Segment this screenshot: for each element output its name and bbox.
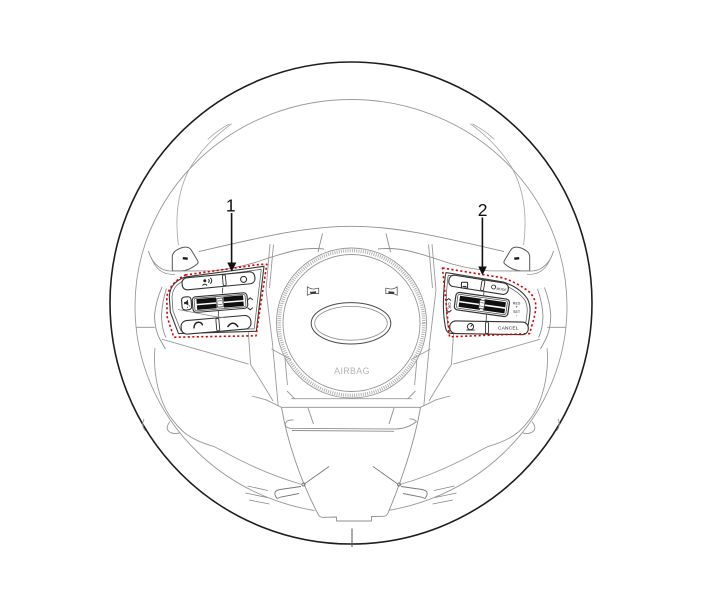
svg-text:2: 2 <box>478 200 488 220</box>
svg-text:AIRBAG: AIRBAG <box>334 366 370 376</box>
svg-text:1: 1 <box>226 195 236 215</box>
svg-text:OK: OK <box>447 302 452 308</box>
svg-text:CANCEL: CANCEL <box>498 325 519 331</box>
